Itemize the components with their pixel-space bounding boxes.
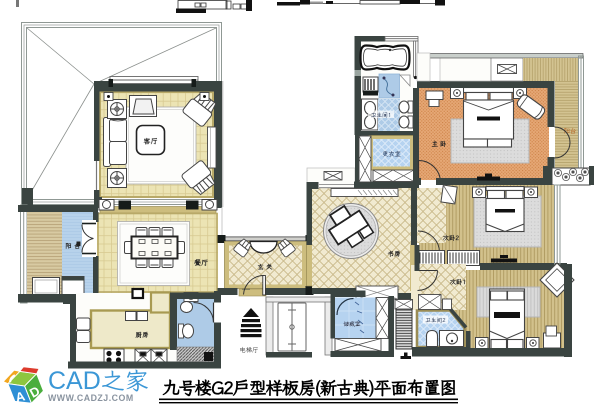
- svg-text:客厅: 客厅: [144, 137, 158, 146]
- svg-text:次卧2: 次卧2: [443, 234, 459, 242]
- svg-text:主 卧: 主 卧: [432, 139, 448, 148]
- svg-text:更衣室: 更衣室: [382, 150, 401, 158]
- svg-text:阳台: 阳台: [564, 127, 576, 135]
- svg-text:WWW.CADZJ.COM: WWW.CADZJ.COM: [48, 393, 134, 403]
- svg-text:餐厅: 餐厅: [193, 258, 208, 267]
- svg-text:电梯厅: 电梯厅: [240, 345, 259, 354]
- svg-text:卫生间1: 卫生间1: [371, 111, 392, 119]
- svg-text:储藏室: 储藏室: [343, 320, 361, 328]
- svg-text:玄 关: 玄 关: [257, 262, 273, 271]
- svg-text:卫生间2: 卫生间2: [425, 316, 446, 324]
- svg-text:九号楼G2户型样板房(新古典)平面布置图: 九号楼G2户型样板房(新古典)平面布置图: [162, 376, 457, 399]
- svg-text:书房: 书房: [388, 249, 402, 258]
- svg-text:CAD之家: CAD之家: [48, 364, 149, 396]
- svg-text:厨房: 厨房: [136, 330, 150, 339]
- svg-text:次卧1: 次卧1: [450, 278, 466, 286]
